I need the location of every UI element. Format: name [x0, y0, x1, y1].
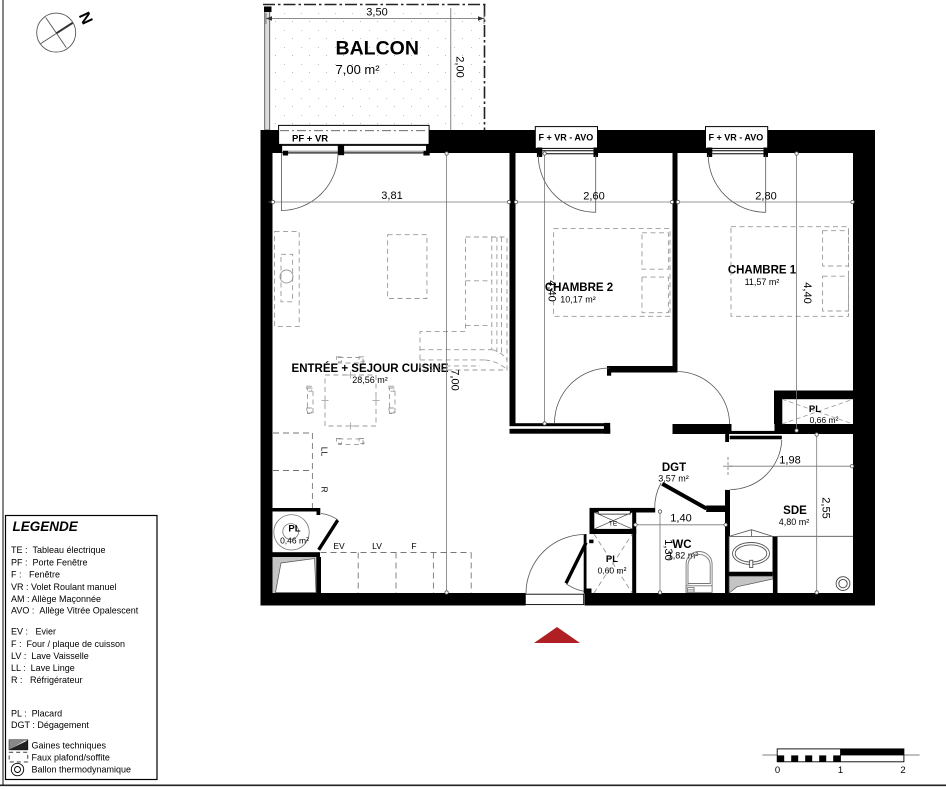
- svg-text:0: 0: [775, 765, 780, 776]
- svg-text:7,00 m²: 7,00 m²: [336, 62, 381, 77]
- svg-text:3,57 m²: 3,57 m²: [658, 474, 689, 484]
- svg-text:BALCON: BALCON: [336, 38, 419, 60]
- svg-text:4,40: 4,40: [801, 282, 813, 303]
- svg-text:LV: LV: [372, 541, 382, 551]
- svg-text:3,50: 3,50: [366, 7, 387, 19]
- svg-text:2: 2: [900, 765, 905, 776]
- svg-text:2,80: 2,80: [755, 191, 776, 203]
- svg-text:AVO : Allège Vitrée Opalescen: AVO : Allège Vitrée Opalescent: [11, 606, 139, 616]
- svg-text:1: 1: [838, 765, 843, 776]
- svg-text:PL: PL: [809, 404, 821, 415]
- svg-text:2,00: 2,00: [454, 56, 466, 77]
- svg-text:EV : Evier: EV : Evier: [11, 627, 56, 637]
- svg-text:EV: EV: [333, 541, 345, 551]
- svg-text:LL : Lave Linge: LL : Lave Linge: [11, 663, 75, 673]
- svg-text:1,30: 1,30: [662, 539, 674, 560]
- svg-text:4,40: 4,40: [546, 280, 558, 301]
- svg-text:SDE: SDE: [783, 505, 807, 517]
- svg-text:ENTRÉE + SEJOUR CUISINE: ENTRÉE + SEJOUR CUISINE: [292, 362, 449, 375]
- svg-text:1,40: 1,40: [670, 513, 691, 525]
- svg-text:11,57 m²: 11,57 m²: [745, 277, 780, 287]
- svg-text:PL: PL: [288, 524, 300, 535]
- svg-text:DGT: DGT: [662, 462, 686, 474]
- svg-text:PF + VR: PF + VR: [292, 134, 328, 145]
- svg-text:LL: LL: [320, 447, 330, 457]
- svg-text:LV : Lave Vaisselle: LV : Lave Vaisselle: [11, 651, 89, 661]
- svg-text:0,60 m²: 0,60 m²: [598, 566, 627, 576]
- svg-text:3,81: 3,81: [381, 190, 402, 202]
- svg-text:4,80 m²: 4,80 m²: [779, 517, 810, 527]
- svg-text:1,98: 1,98: [779, 455, 800, 467]
- svg-text:2,60: 2,60: [583, 191, 604, 203]
- svg-text:F: F: [411, 541, 416, 551]
- svg-text:R: R: [320, 486, 330, 492]
- svg-text:0,66 m²: 0,66 m²: [810, 415, 839, 425]
- svg-text:LEGENDE: LEGENDE: [13, 519, 79, 534]
- svg-text:DGT : Dégagement: DGT : Dégagement: [11, 720, 89, 730]
- svg-text:F : Four / plaque de cuisson: F : Four / plaque de cuisson: [11, 639, 125, 649]
- svg-text:PL : Placard: PL : Placard: [11, 709, 62, 719]
- svg-text:Ballon thermodynamique: Ballon thermodynamique: [32, 765, 132, 775]
- svg-text:TE: TE: [609, 521, 618, 528]
- svg-text:F : Fenêtre: F : Fenêtre: [11, 570, 60, 580]
- svg-text:PF : Porte Fenêtre: PF : Porte Fenêtre: [11, 558, 88, 568]
- svg-text:0,46 m²: 0,46 m²: [280, 536, 309, 546]
- svg-text:10,17 m²: 10,17 m²: [560, 295, 596, 305]
- svg-text:AM : Allège Maçonnée: AM : Allège Maçonnée: [11, 594, 101, 604]
- svg-text:F + VR - AVO: F + VR - AVO: [709, 133, 764, 143]
- svg-text:PL: PL: [606, 554, 618, 565]
- svg-text:2,55: 2,55: [820, 497, 832, 518]
- svg-text:VR : Volet Roulant manuel: VR : Volet Roulant manuel: [11, 582, 117, 592]
- svg-text:TE : Tableau électrique: TE : Tableau électrique: [11, 545, 106, 555]
- svg-text:Faux plafond/soffite: Faux plafond/soffite: [32, 753, 110, 763]
- svg-text:WC: WC: [672, 539, 691, 551]
- svg-text:F + VR - AVO: F + VR - AVO: [539, 133, 594, 143]
- svg-text:Gaines techniques: Gaines techniques: [32, 741, 107, 751]
- svg-text:7,00: 7,00: [449, 369, 461, 390]
- svg-text:R : Réfrigérateur: R : Réfrigérateur: [11, 675, 83, 685]
- svg-text:CHAMBRE 1: CHAMBRE 1: [728, 265, 797, 277]
- svg-text:28,56 m²: 28,56 m²: [352, 375, 388, 385]
